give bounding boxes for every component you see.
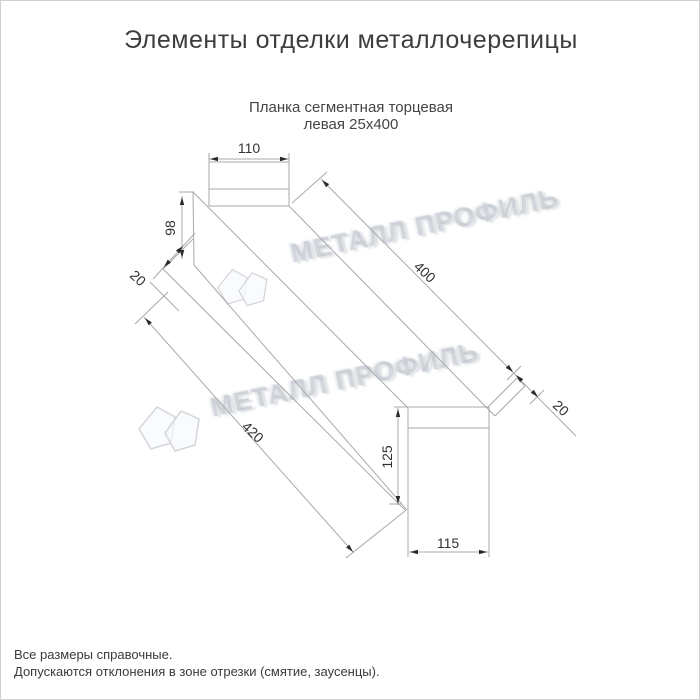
dim-top-width-label: 110 — [238, 140, 260, 156]
dim-right-end-height-label: 125 — [379, 445, 395, 468]
label-layer: Элементы отделки металлочерепицы Планка … — [1, 1, 699, 699]
dim-top-edge-length-label: 400 — [411, 258, 439, 286]
dim-left-fold-label: 20 — [127, 267, 149, 289]
dim-left-end-height-label: 98 — [162, 220, 178, 236]
drawing-subtitle-line1: Планка сегментная торцевая — [1, 99, 700, 116]
dim-bottom-edge-length-label: 420 — [239, 418, 267, 446]
dim-bottom-width-label: 115 — [437, 535, 459, 551]
footer-note-line1: Все размеры справочные. — [14, 647, 172, 662]
drawing-page: МЕТАЛЛ ПРОФИЛЬ МЕТАЛЛ ПРОФИЛЬ — [0, 0, 700, 700]
footer-note-line2: Допускаются отклонения в зоне отрезки (с… — [14, 664, 380, 679]
drawing-subtitle-line2: левая 25х400 — [1, 116, 700, 133]
page-title: Элементы отделки металлочерепицы — [1, 26, 700, 55]
dim-right-fold-label: 20 — [550, 397, 572, 419]
